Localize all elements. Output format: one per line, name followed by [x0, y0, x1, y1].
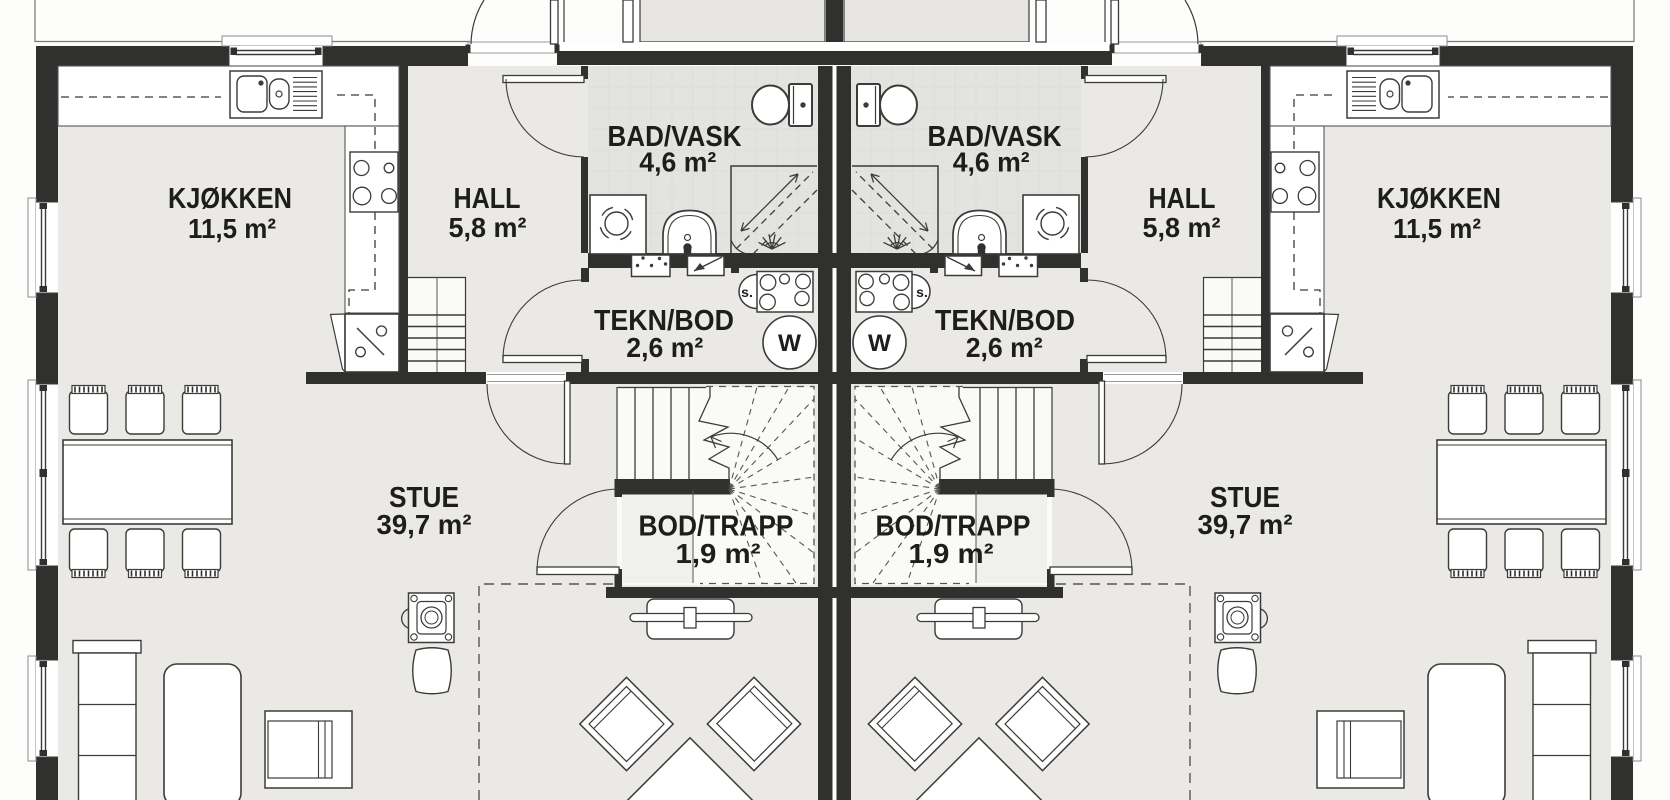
svg-text:s.: s. — [916, 284, 928, 300]
svg-text:5,8 m²: 5,8 m² — [449, 212, 527, 243]
svg-text:KJØKKEN: KJØKKEN — [168, 183, 292, 215]
svg-text:1,9 m²: 1,9 m² — [909, 538, 994, 569]
svg-text:2,6 m²: 2,6 m² — [966, 332, 1043, 363]
svg-text:4,6 m²: 4,6 m² — [953, 147, 1030, 178]
svg-text:2,6 m²: 2,6 m² — [626, 332, 703, 363]
svg-text:HALL: HALL — [1149, 183, 1216, 215]
svg-text:4,6 m²: 4,6 m² — [639, 147, 716, 178]
svg-text:W: W — [778, 330, 801, 357]
svg-text:KJØKKEN: KJØKKEN — [1377, 183, 1501, 215]
svg-text:11,5 m²: 11,5 m² — [1393, 213, 1481, 244]
svg-text:11,5 m²: 11,5 m² — [188, 213, 276, 244]
svg-text:39,7 m²: 39,7 m² — [377, 509, 472, 540]
svg-text:W: W — [868, 330, 891, 357]
svg-text:HALL: HALL — [454, 183, 521, 215]
svg-text:5,8 m²: 5,8 m² — [1143, 212, 1221, 243]
svg-text:s.: s. — [741, 284, 753, 300]
svg-text:39,7 m²: 39,7 m² — [1198, 509, 1293, 540]
svg-text:1,9 m²: 1,9 m² — [676, 538, 761, 569]
